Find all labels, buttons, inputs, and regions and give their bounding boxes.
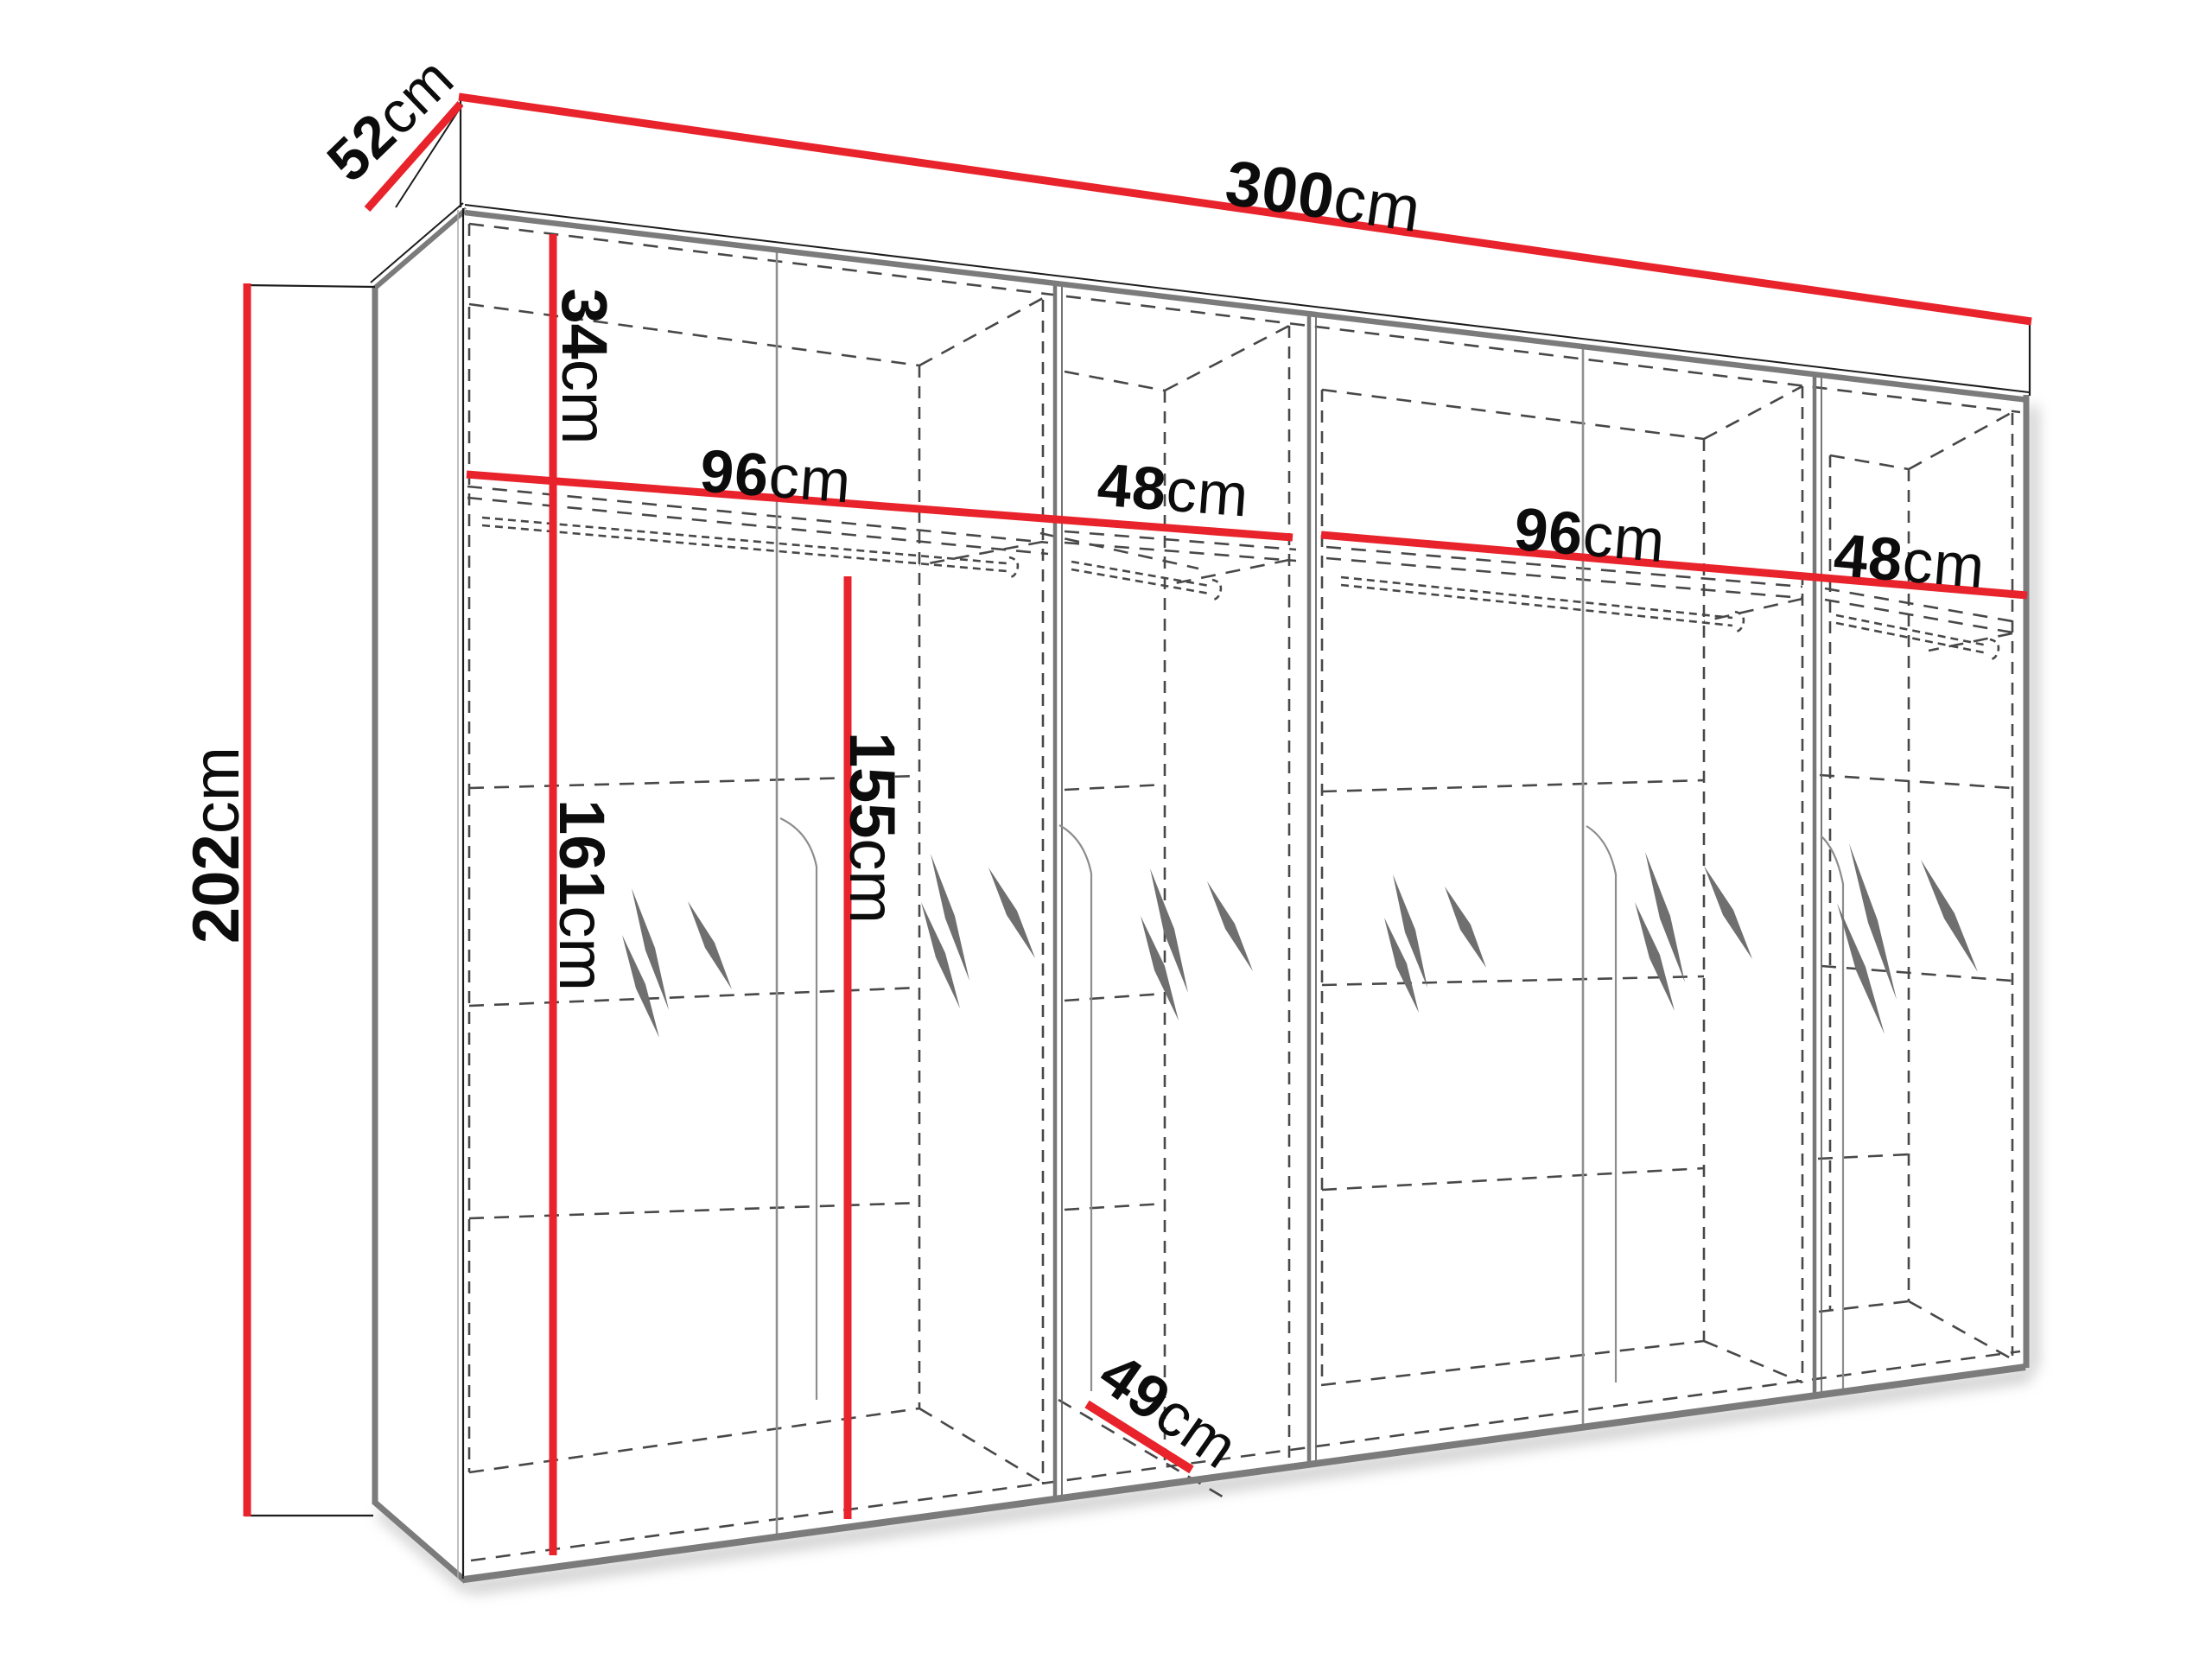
svg-text:34cm: 34cm — [549, 289, 620, 445]
svg-text:48cm: 48cm — [1831, 521, 1987, 601]
svg-text:96cm: 96cm — [698, 436, 855, 515]
svg-text:48cm: 48cm — [1096, 450, 1252, 529]
svg-text:155cm: 155cm — [836, 732, 908, 924]
svg-text:161cm: 161cm — [546, 799, 618, 991]
svg-text:202cm: 202cm — [180, 747, 253, 944]
svg-text:96cm: 96cm — [1511, 495, 1668, 575]
